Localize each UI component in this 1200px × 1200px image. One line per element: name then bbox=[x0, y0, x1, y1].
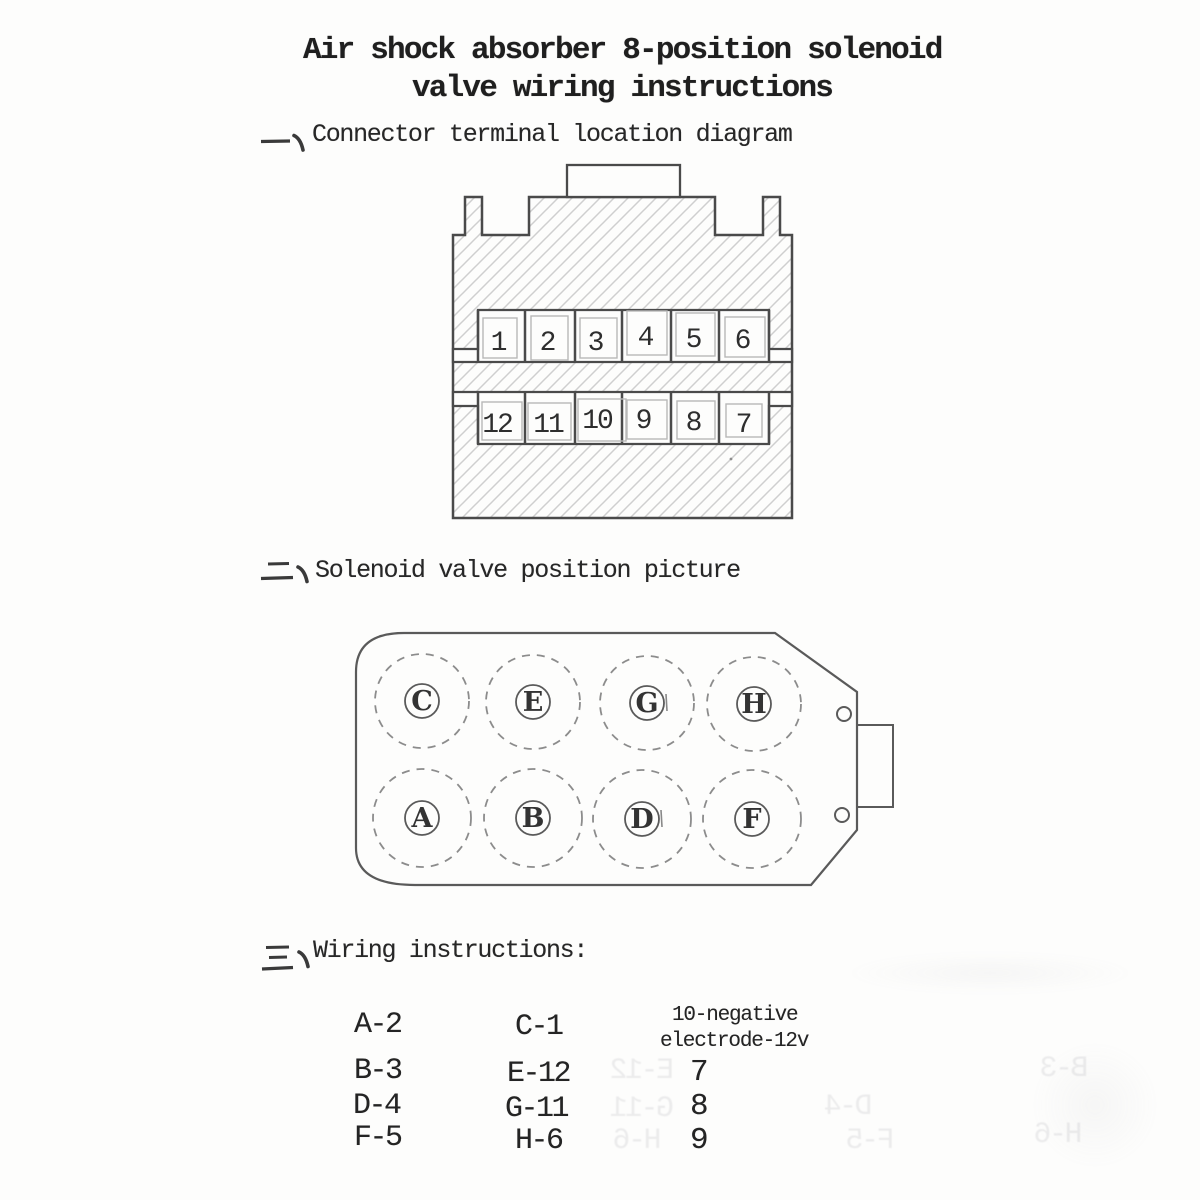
wiring-pair: H-6 bbox=[515, 1126, 562, 1156]
terminal-number: 3 bbox=[588, 328, 604, 359]
section-one-marker-icon bbox=[258, 128, 312, 160]
terminal-number: 5 bbox=[686, 325, 702, 356]
section-two-marker-icon bbox=[258, 556, 314, 590]
terminal-number: 4 bbox=[638, 323, 654, 354]
valve-letter: D bbox=[630, 804, 653, 835]
valve-letter: E bbox=[523, 687, 544, 718]
terminal-number: 7 bbox=[736, 410, 751, 441]
scan-speck bbox=[730, 458, 733, 461]
section-one-heading: Connector terminal location diagram bbox=[312, 121, 792, 149]
connector-top-tab bbox=[567, 165, 680, 197]
valve-letter: C bbox=[411, 686, 433, 717]
valve-letter: A bbox=[411, 803, 434, 834]
document-title-line2: valve wiring instructions bbox=[412, 72, 832, 106]
valve-letter: H bbox=[741, 689, 767, 720]
terminal-number: 1 bbox=[491, 328, 507, 359]
wiring-pair: C-1 bbox=[515, 1012, 562, 1042]
valve-letter: G bbox=[635, 688, 658, 719]
mounting-hole-bottom bbox=[835, 808, 849, 822]
wiring-terminal-number: 9 bbox=[690, 1125, 709, 1156]
wiring-terminal-number: 8 bbox=[690, 1091, 709, 1122]
connector-terminal-diagram: 1 2 3 4 5 6 12 11 10 9 8 7 bbox=[440, 150, 810, 530]
wiring-note-line1: 10-negative bbox=[672, 1004, 797, 1027]
bleed-through-text: E-12 bbox=[612, 1056, 674, 1086]
bleed-through-text: G-11 bbox=[612, 1094, 674, 1124]
section-three-marker-icon bbox=[258, 940, 314, 974]
solenoid-valve-diagram: C E G H A B D F bbox=[336, 612, 916, 900]
terminal-number: 8 bbox=[686, 408, 701, 439]
wiring-pair: A-2 bbox=[354, 1010, 401, 1040]
scan-smudge bbox=[1030, 1040, 1160, 1170]
wiring-pair: F-5 bbox=[354, 1123, 401, 1153]
section-three-heading: Wiring instructions: bbox=[313, 937, 587, 965]
terminal-number: 11 bbox=[533, 410, 564, 441]
mounting-hole-top bbox=[837, 707, 851, 721]
valve-letter: F bbox=[742, 804, 761, 835]
document-title-line1: Air shock absorber 8-position solenoid bbox=[303, 34, 942, 68]
valve-letter: B bbox=[522, 803, 545, 834]
terminal-number: 12 bbox=[482, 410, 512, 441]
scan-smudge bbox=[840, 952, 1140, 994]
terminal-number: 9 bbox=[636, 406, 651, 437]
terminal-number: 6 bbox=[735, 326, 750, 357]
wiring-pair: D-4 bbox=[353, 1091, 400, 1121]
bleed-through-text: D-4 bbox=[826, 1092, 873, 1122]
scanned-document-page: Air shock absorber 8-position solenoid v… bbox=[0, 0, 1200, 1200]
wiring-pair: B-3 bbox=[354, 1056, 401, 1086]
bleed-through-text: H-6 bbox=[615, 1126, 662, 1156]
bleed-through-text: F-5 bbox=[848, 1126, 895, 1156]
scan-tick bbox=[666, 694, 667, 711]
terminal-number: 2 bbox=[540, 328, 555, 359]
scan-tick bbox=[661, 810, 662, 827]
wiring-pair: E-12 bbox=[507, 1059, 569, 1089]
wiring-terminal-number: 7 bbox=[690, 1057, 709, 1088]
terminal-number: 10 bbox=[582, 406, 613, 437]
wiring-note-line2: electrode-12v bbox=[660, 1030, 808, 1053]
solenoid-right-tab bbox=[857, 725, 893, 807]
wiring-pair: G-11 bbox=[505, 1094, 567, 1124]
section-two-heading: Solenoid valve position picture bbox=[315, 557, 740, 585]
solenoid-body bbox=[356, 633, 857, 885]
